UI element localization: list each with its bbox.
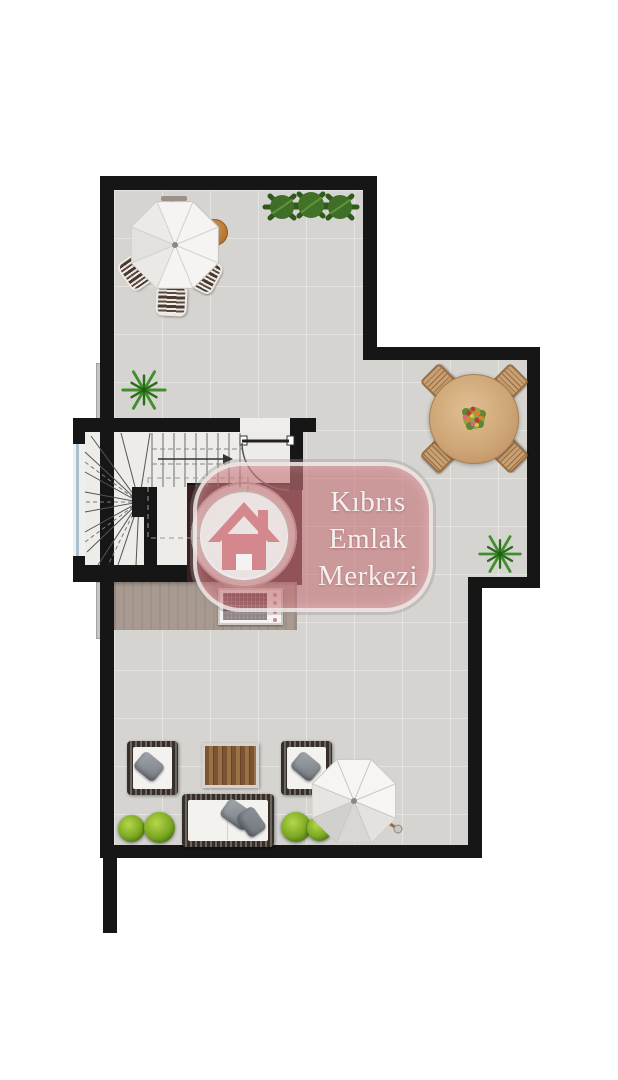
wall-bottom (100, 845, 482, 858)
wall-step-upper (363, 347, 540, 360)
wall-right-upper (363, 176, 377, 360)
parasol-top (123, 196, 227, 300)
coffee-table (202, 743, 259, 788)
outside-area-bottom-right (482, 588, 540, 858)
parasol-bottom (306, 753, 406, 853)
hedge-plant (262, 186, 360, 228)
potted-shrub-1 (118, 815, 145, 842)
stair-newel (132, 487, 145, 517)
outside-area-top-right (377, 176, 540, 347)
wall-stub-bottom-left (103, 858, 117, 933)
brand-word-1: Kıbrıs (298, 484, 438, 521)
armchair-left (127, 741, 178, 795)
brand-word-3: Merkezi (298, 558, 438, 595)
agave-plant-left (120, 366, 168, 414)
agave-plant-right (477, 531, 523, 577)
potted-shrub-2 (144, 812, 175, 843)
floorplan-canvas: Kıbrıs Emlak Merkezi (0, 0, 618, 1080)
house-logo-icon (200, 492, 288, 580)
wall-right-mid (527, 347, 540, 588)
flower-centerpiece (460, 404, 488, 432)
brand-wordmark: Kıbrıs Emlak Merkezi (298, 484, 438, 595)
brand-word-2: Emlak (298, 521, 438, 558)
wall-right-lower (468, 577, 482, 858)
sofa (182, 794, 274, 847)
